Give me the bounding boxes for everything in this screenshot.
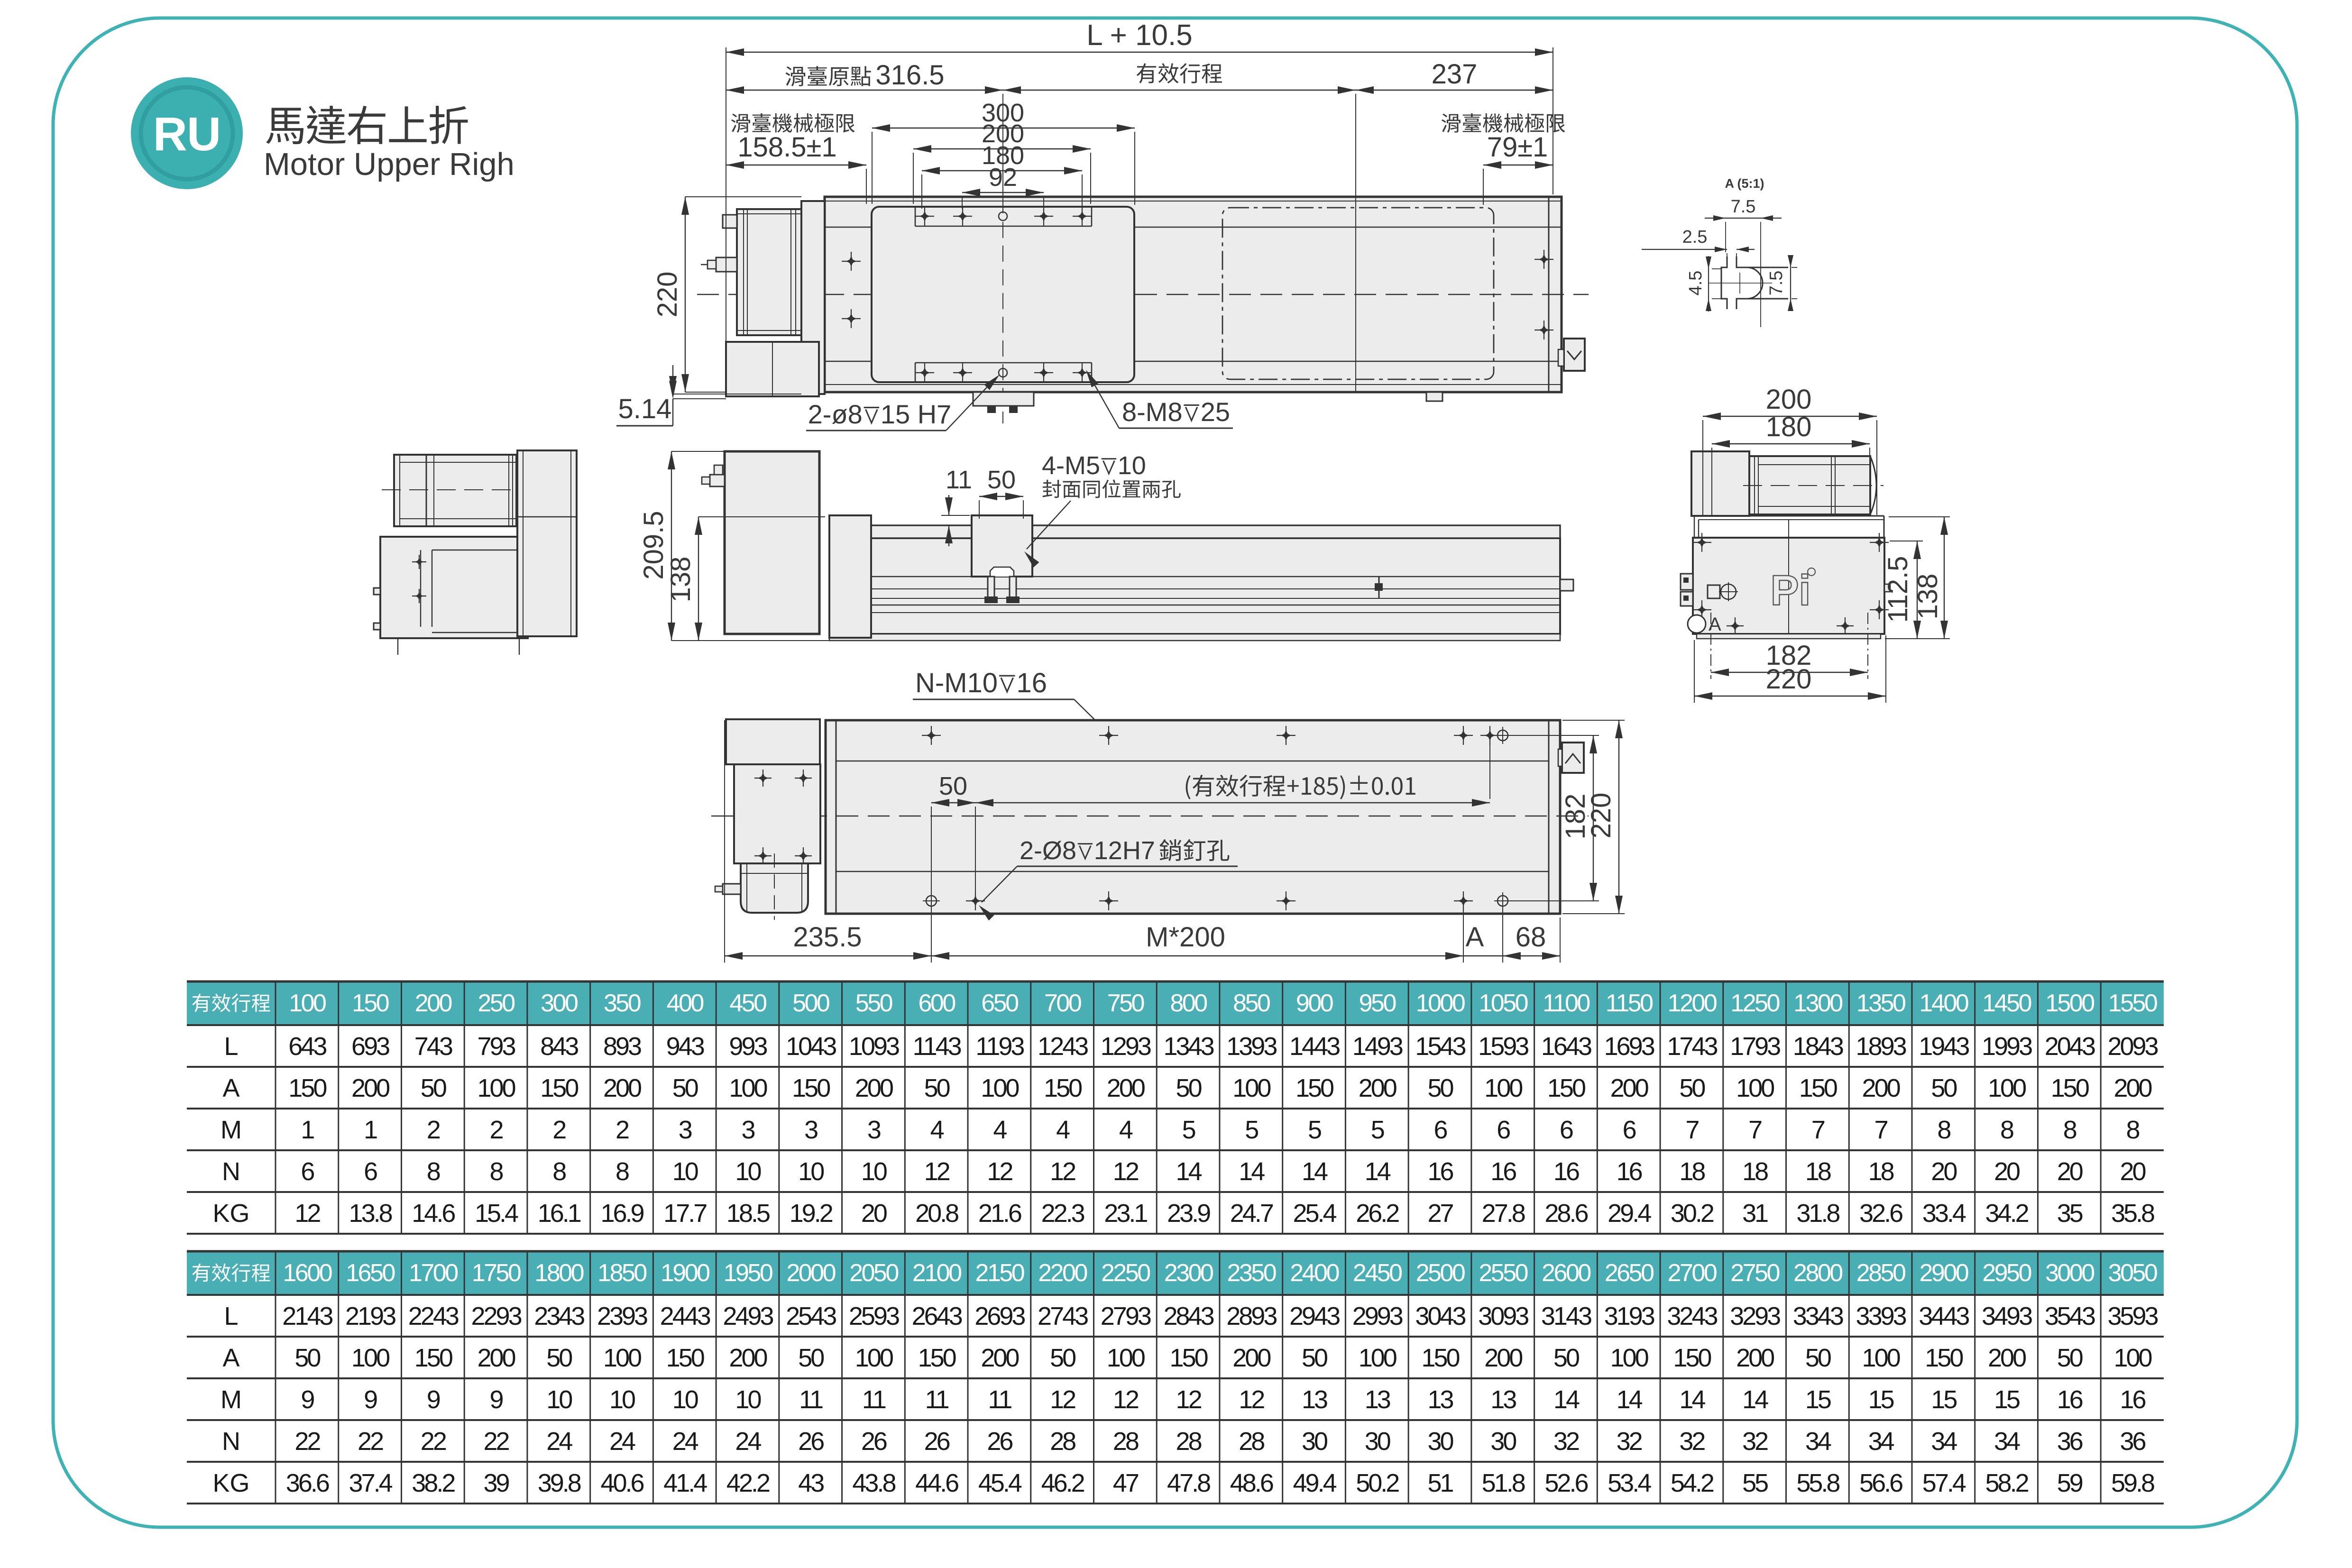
svg-text:24.7: 24.7 (1230, 1199, 1273, 1228)
svg-text:92: 92 (989, 163, 1017, 192)
svg-text:26.2: 26.2 (1356, 1199, 1399, 1228)
svg-text:138: 138 (665, 557, 696, 603)
svg-text:L: L (224, 1032, 238, 1061)
svg-text:A: A (222, 1344, 239, 1372)
svg-text:24: 24 (735, 1427, 761, 1456)
svg-text:35: 35 (2057, 1199, 2083, 1228)
svg-text:23.9: 23.9 (1167, 1199, 1210, 1228)
svg-text:6: 6 (1623, 1116, 1636, 1144)
svg-text:9: 9 (364, 1385, 377, 1414)
svg-text:26: 26 (861, 1427, 887, 1456)
svg-text:793: 793 (477, 1032, 515, 1061)
svg-text:220: 220 (1586, 793, 1617, 839)
svg-text:12: 12 (1113, 1385, 1139, 1414)
svg-text:21.6: 21.6 (978, 1199, 1021, 1228)
svg-text:11: 11 (799, 1385, 823, 1414)
svg-text:50: 50 (1176, 1074, 1202, 1102)
svg-text:100: 100 (289, 990, 326, 1017)
svg-text:36: 36 (2057, 1427, 2083, 1456)
svg-text:2: 2 (616, 1116, 629, 1144)
svg-text:237: 237 (1432, 59, 1478, 90)
svg-text:350: 350 (604, 990, 641, 1017)
svg-text:150: 150 (1421, 1344, 1459, 1372)
svg-text:3343: 3343 (1793, 1302, 1843, 1330)
svg-text:18: 18 (1805, 1157, 1831, 1186)
svg-text:32: 32 (1553, 1427, 1579, 1456)
svg-text:14: 14 (1365, 1157, 1391, 1186)
svg-text:150: 150 (352, 990, 389, 1017)
svg-text:12: 12 (1113, 1157, 1139, 1186)
svg-text:28: 28 (1050, 1427, 1075, 1456)
svg-text:11: 11 (988, 1385, 1011, 1414)
svg-text:54.2: 54.2 (1671, 1469, 1714, 1497)
svg-text:9: 9 (490, 1385, 503, 1414)
svg-text:2043: 2043 (2045, 1032, 2095, 1061)
svg-text:9: 9 (301, 1385, 314, 1414)
svg-text:993: 993 (729, 1032, 767, 1061)
svg-text:58.2: 58.2 (1985, 1469, 2029, 1497)
svg-text:M: M (220, 1116, 242, 1144)
svg-text:8: 8 (427, 1157, 440, 1186)
svg-text:45.4: 45.4 (978, 1469, 1022, 1497)
svg-text:150: 150 (918, 1344, 956, 1372)
svg-text:50: 50 (939, 772, 967, 800)
svg-text:4-M5: 4-M5 (1042, 451, 1100, 480)
svg-text:3443: 3443 (1919, 1302, 1969, 1330)
svg-text:2850: 2850 (1856, 1259, 1905, 1287)
svg-text:150: 150 (1295, 1074, 1333, 1102)
svg-text:16: 16 (1553, 1157, 1579, 1186)
svg-text:24: 24 (546, 1427, 572, 1456)
svg-text:30.2: 30.2 (1671, 1199, 1714, 1228)
svg-text:10: 10 (672, 1157, 698, 1186)
svg-text:3243: 3243 (1667, 1302, 1717, 1330)
svg-text:28.6: 28.6 (1544, 1199, 1588, 1228)
svg-text:450: 450 (729, 990, 766, 1017)
svg-text:3493: 3493 (1982, 1302, 2032, 1330)
svg-text:800: 800 (1170, 990, 1207, 1017)
svg-text:200: 200 (2113, 1074, 2151, 1102)
svg-text:209.5: 209.5 (638, 511, 669, 579)
svg-text:200: 200 (1862, 1074, 1900, 1102)
svg-text:22: 22 (294, 1427, 320, 1456)
svg-text:55: 55 (1742, 1469, 1768, 1497)
svg-text:150: 150 (1799, 1074, 1837, 1102)
svg-text:51: 51 (1427, 1469, 1453, 1497)
svg-text:50: 50 (672, 1074, 698, 1102)
svg-text:8: 8 (2126, 1116, 2140, 1144)
svg-text:100: 100 (351, 1344, 389, 1372)
svg-text:34: 34 (1868, 1427, 1894, 1456)
svg-text:700: 700 (1044, 990, 1081, 1017)
svg-text:1793: 1793 (1730, 1032, 1780, 1061)
svg-text:50: 50 (1805, 1344, 1831, 1372)
svg-text:2750: 2750 (1730, 1259, 1779, 1287)
svg-text:42.2: 42.2 (726, 1469, 770, 1497)
svg-text:30: 30 (1365, 1427, 1390, 1456)
svg-text:2500: 2500 (1416, 1259, 1465, 1287)
svg-text:11: 11 (946, 466, 972, 494)
svg-text:50: 50 (2057, 1344, 2083, 1372)
svg-text:1700: 1700 (409, 1259, 458, 1287)
svg-text:38.2: 38.2 (412, 1469, 455, 1497)
svg-text:3193: 3193 (1604, 1302, 1654, 1330)
svg-text:25: 25 (1201, 397, 1230, 427)
svg-text:235.5: 235.5 (793, 922, 862, 953)
svg-text:2100: 2100 (912, 1259, 961, 1287)
svg-text:500: 500 (792, 990, 829, 1017)
svg-text:51.8: 51.8 (1482, 1469, 1525, 1497)
svg-text:1443: 1443 (1289, 1032, 1340, 1061)
svg-text:3593: 3593 (2107, 1302, 2158, 1330)
svg-text:22.3: 22.3 (1041, 1199, 1084, 1228)
svg-text:200: 200 (855, 1074, 893, 1102)
svg-text:28: 28 (1176, 1427, 1202, 1456)
svg-text:220: 220 (652, 272, 683, 318)
svg-text:RU: RU (153, 108, 220, 161)
svg-text:2943: 2943 (1289, 1302, 1340, 1330)
svg-text:25.4: 25.4 (1293, 1199, 1336, 1228)
svg-text:200: 200 (981, 1344, 1019, 1372)
svg-text:200: 200 (1359, 1074, 1396, 1102)
svg-text:1543: 1543 (1415, 1032, 1465, 1061)
svg-text:50: 50 (987, 466, 1016, 494)
svg-text:6: 6 (364, 1157, 377, 1186)
svg-text:11: 11 (925, 1385, 949, 1414)
svg-text:100: 100 (2113, 1344, 2151, 1372)
svg-text:250: 250 (478, 990, 514, 1017)
svg-text:643: 643 (288, 1032, 326, 1061)
svg-text:138: 138 (1912, 574, 1943, 620)
svg-text:59: 59 (2057, 1469, 2083, 1497)
svg-text:27.8: 27.8 (1482, 1199, 1525, 1228)
svg-text:2843: 2843 (1164, 1302, 1214, 1330)
svg-text:29.4: 29.4 (1608, 1199, 1651, 1228)
svg-text:150: 150 (1925, 1344, 1963, 1372)
svg-text:4: 4 (993, 1116, 1007, 1144)
svg-text:1943: 1943 (1919, 1032, 1969, 1061)
svg-text:50: 50 (924, 1074, 950, 1102)
svg-text:100: 100 (729, 1074, 767, 1102)
svg-text:12: 12 (987, 1157, 1012, 1186)
svg-text:26: 26 (987, 1427, 1012, 1456)
svg-text:943: 943 (666, 1032, 704, 1061)
svg-text:26: 26 (924, 1427, 950, 1456)
svg-text:8: 8 (616, 1157, 629, 1186)
svg-text:1850: 1850 (597, 1259, 646, 1287)
svg-text:14: 14 (1679, 1385, 1705, 1414)
svg-text:37.4: 37.4 (349, 1469, 393, 1497)
svg-text:13.8: 13.8 (349, 1199, 392, 1228)
svg-text:200: 200 (351, 1074, 389, 1102)
svg-text:2493: 2493 (723, 1302, 773, 1330)
svg-text:200: 200 (1232, 1344, 1270, 1372)
svg-text:2393: 2393 (597, 1302, 647, 1330)
svg-text:1693: 1693 (1604, 1032, 1654, 1061)
svg-text:53.4: 53.4 (1608, 1469, 1651, 1497)
svg-text:Motor Upper Righ: Motor Upper Righ (264, 147, 514, 182)
svg-text:1750: 1750 (472, 1259, 521, 1287)
svg-text:7: 7 (1874, 1116, 1888, 1144)
svg-text:10: 10 (546, 1385, 572, 1414)
svg-text:100: 100 (1359, 1344, 1396, 1372)
svg-text:2000: 2000 (786, 1259, 835, 1287)
svg-text:23.1: 23.1 (1104, 1199, 1147, 1228)
svg-text:1493: 1493 (1352, 1032, 1403, 1061)
svg-text:20: 20 (2057, 1157, 2083, 1186)
svg-text:12: 12 (1050, 1385, 1075, 1414)
svg-text:34: 34 (1805, 1427, 1831, 1456)
svg-text:1593: 1593 (1478, 1032, 1528, 1061)
svg-text:39: 39 (484, 1469, 509, 1497)
svg-text:200: 200 (477, 1344, 515, 1372)
svg-text:4: 4 (1119, 1116, 1133, 1144)
svg-text:1143: 1143 (913, 1032, 961, 1061)
svg-text:2300: 2300 (1164, 1259, 1213, 1287)
svg-text:100: 100 (477, 1074, 515, 1102)
svg-text:KG: KG (212, 1469, 249, 1497)
svg-text:1300: 1300 (1793, 990, 1842, 1017)
svg-text:1650: 1650 (346, 1259, 395, 1287)
svg-text:50: 50 (1931, 1074, 1957, 1102)
svg-text:7: 7 (1748, 1116, 1762, 1144)
svg-text:3543: 3543 (2045, 1302, 2095, 1330)
svg-text:5.14: 5.14 (618, 394, 672, 424)
svg-text:2900: 2900 (1919, 1259, 1968, 1287)
svg-text:150: 150 (288, 1074, 326, 1102)
svg-text:7.5: 7.5 (1766, 271, 1786, 296)
svg-text:1343: 1343 (1164, 1032, 1214, 1061)
svg-text:15.4: 15.4 (475, 1199, 518, 1228)
svg-text:50: 50 (1553, 1344, 1579, 1372)
svg-text:1250: 1250 (1730, 990, 1779, 1017)
svg-text:16.1: 16.1 (538, 1199, 581, 1228)
svg-text:893: 893 (603, 1032, 641, 1061)
svg-text:150: 150 (414, 1344, 452, 1372)
svg-text:14: 14 (1553, 1385, 1580, 1414)
svg-text:57.4: 57.4 (1922, 1469, 1966, 1497)
svg-text:2793: 2793 (1101, 1302, 1151, 1330)
svg-text:1550: 1550 (2108, 990, 2157, 1017)
svg-text:14: 14 (1239, 1157, 1265, 1186)
svg-text:2350: 2350 (1227, 1259, 1276, 1287)
svg-text:A: A (1466, 922, 1484, 953)
svg-text:2-ø8: 2-ø8 (808, 399, 863, 429)
svg-text:750: 750 (1107, 990, 1144, 1017)
svg-text:150: 150 (2051, 1074, 2089, 1102)
svg-text:10: 10 (798, 1157, 824, 1186)
svg-text:2950: 2950 (1982, 1259, 2031, 1287)
svg-text:22: 22 (484, 1427, 509, 1456)
svg-text:3000: 3000 (2045, 1259, 2094, 1287)
svg-text:3: 3 (741, 1116, 754, 1144)
svg-text:3043: 3043 (1415, 1302, 1465, 1330)
svg-text:150: 150 (1170, 1344, 1208, 1372)
svg-text:1600: 1600 (283, 1259, 332, 1287)
svg-text:100: 100 (603, 1344, 641, 1372)
svg-text:11: 11 (862, 1385, 886, 1414)
svg-text:8: 8 (552, 1157, 566, 1186)
svg-text:50: 50 (546, 1344, 572, 1372)
svg-text:2443: 2443 (660, 1302, 710, 1330)
svg-text:8-M8: 8-M8 (1122, 397, 1183, 427)
svg-text:22: 22 (421, 1427, 446, 1456)
svg-text:46.2: 46.2 (1041, 1469, 1084, 1497)
svg-text:220: 220 (1766, 664, 1812, 695)
svg-text:16: 16 (1490, 1157, 1516, 1186)
svg-text:1393: 1393 (1226, 1032, 1277, 1061)
svg-text:2543: 2543 (786, 1302, 836, 1330)
svg-text:13: 13 (1302, 1385, 1327, 1414)
svg-text:14: 14 (1302, 1157, 1328, 1186)
svg-text:34.2: 34.2 (1985, 1199, 2029, 1228)
svg-text:L + 10.5: L + 10.5 (1086, 19, 1193, 52)
svg-text:150: 150 (1547, 1074, 1585, 1102)
svg-text:33.4: 33.4 (1922, 1199, 1966, 1228)
svg-text:2893: 2893 (1226, 1302, 1277, 1330)
svg-text:550: 550 (855, 990, 892, 1017)
svg-text:7: 7 (1685, 1116, 1699, 1144)
svg-text:693: 693 (351, 1032, 389, 1061)
svg-text:32.6: 32.6 (1859, 1199, 1902, 1228)
svg-text:100: 100 (1988, 1074, 2026, 1102)
svg-text:100: 100 (981, 1074, 1019, 1102)
svg-text:2643: 2643 (912, 1302, 962, 1330)
svg-text:1843: 1843 (1793, 1032, 1843, 1061)
svg-text:A: A (222, 1074, 239, 1102)
svg-text:30: 30 (1490, 1427, 1516, 1456)
svg-text:1293: 1293 (1101, 1032, 1151, 1061)
svg-text:8: 8 (490, 1157, 503, 1186)
svg-text:10: 10 (735, 1385, 761, 1414)
svg-text:20: 20 (2120, 1157, 2145, 1186)
svg-text:200: 200 (415, 990, 452, 1017)
svg-text:950: 950 (1359, 990, 1396, 1017)
svg-text:180: 180 (1766, 412, 1812, 442)
svg-text:31: 31 (1742, 1199, 1768, 1228)
svg-text:1100: 1100 (1543, 990, 1589, 1017)
svg-text:15: 15 (1868, 1385, 1894, 1414)
svg-text:50: 50 (1679, 1074, 1705, 1102)
svg-text:150: 150 (666, 1344, 704, 1372)
svg-text:1950: 1950 (724, 1259, 772, 1287)
svg-text:200: 200 (1766, 384, 1812, 415)
svg-text:900: 900 (1296, 990, 1333, 1017)
svg-text:200: 200 (1484, 1344, 1522, 1372)
svg-text:8: 8 (1937, 1116, 1950, 1144)
svg-text:34: 34 (1994, 1427, 2020, 1456)
svg-text:50: 50 (1050, 1344, 1075, 1372)
svg-text:843: 843 (540, 1032, 578, 1061)
svg-text:14.6: 14.6 (412, 1199, 455, 1228)
svg-text:2743: 2743 (1038, 1302, 1088, 1330)
svg-text:1500: 1500 (2045, 990, 2094, 1017)
svg-text:158.5±1: 158.5±1 (737, 132, 836, 163)
svg-text:20: 20 (1994, 1157, 2020, 1186)
svg-text:2250: 2250 (1101, 1259, 1150, 1287)
svg-text:18: 18 (1742, 1157, 1768, 1186)
svg-text:2150: 2150 (975, 1259, 1024, 1287)
svg-text:20: 20 (1931, 1157, 1957, 1186)
svg-text:1093: 1093 (849, 1032, 899, 1061)
svg-text:50: 50 (798, 1344, 824, 1372)
svg-text:6: 6 (301, 1157, 314, 1186)
svg-text:2550: 2550 (1479, 1259, 1527, 1287)
svg-text:12H7: 12H7 (1094, 836, 1155, 865)
svg-text:KG: KG (212, 1199, 249, 1228)
svg-text:3393: 3393 (1856, 1302, 1906, 1330)
svg-text:50: 50 (1427, 1074, 1453, 1102)
svg-text:13: 13 (1490, 1385, 1516, 1414)
svg-text:18.5: 18.5 (726, 1199, 770, 1228)
svg-text:43.8: 43.8 (852, 1469, 895, 1497)
svg-text:14: 14 (1617, 1385, 1643, 1414)
svg-text:150: 150 (540, 1074, 578, 1102)
svg-text:16: 16 (1016, 668, 1047, 698)
svg-text:32: 32 (1617, 1427, 1642, 1456)
svg-text:79±1: 79±1 (1487, 132, 1548, 163)
svg-text:A (5:1): A (5:1) (1725, 176, 1764, 191)
svg-text:50: 50 (421, 1074, 446, 1102)
svg-text:N-M10: N-M10 (915, 668, 998, 698)
svg-text:15: 15 (1994, 1385, 2020, 1414)
svg-text:44.6: 44.6 (915, 1469, 958, 1497)
svg-text:28: 28 (1113, 1427, 1139, 1456)
svg-text:2700: 2700 (1668, 1259, 1717, 1287)
svg-text:28: 28 (1239, 1427, 1264, 1456)
svg-text:35.8: 35.8 (2111, 1199, 2154, 1228)
svg-text:49.4: 49.4 (1293, 1469, 1336, 1497)
svg-text:6: 6 (1433, 1116, 1447, 1144)
svg-text:M: M (220, 1385, 242, 1414)
svg-text:5: 5 (1245, 1116, 1258, 1144)
svg-text:2093: 2093 (2107, 1032, 2158, 1061)
svg-text:200: 200 (1736, 1344, 1774, 1372)
svg-text:47.8: 47.8 (1167, 1469, 1210, 1497)
svg-text:743: 743 (414, 1032, 452, 1061)
svg-text:39.8: 39.8 (538, 1469, 581, 1497)
svg-text:M*200: M*200 (1146, 922, 1225, 953)
svg-text:316.5: 316.5 (875, 60, 944, 91)
svg-text:N: N (222, 1157, 240, 1186)
svg-text:16: 16 (2120, 1385, 2145, 1414)
svg-text:68: 68 (1516, 922, 1546, 953)
svg-text:1450: 1450 (1982, 990, 2031, 1017)
svg-text:1150: 1150 (1606, 990, 1653, 1017)
svg-text:1800: 1800 (534, 1259, 583, 1287)
svg-text:2050: 2050 (849, 1259, 898, 1287)
svg-text:10: 10 (672, 1385, 698, 1414)
svg-text:8: 8 (2000, 1116, 2013, 1144)
svg-text:400: 400 (667, 990, 704, 1017)
svg-text:5: 5 (1308, 1116, 1321, 1144)
svg-text:43: 43 (798, 1469, 824, 1497)
svg-text:10: 10 (1118, 451, 1146, 480)
svg-text:12: 12 (1176, 1385, 1202, 1414)
svg-text:24: 24 (672, 1427, 698, 1456)
svg-text:56.6: 56.6 (1859, 1469, 1902, 1497)
svg-text:100: 100 (1862, 1344, 1900, 1372)
svg-text:1400: 1400 (1919, 990, 1968, 1017)
svg-text:N: N (222, 1427, 240, 1456)
svg-text:12: 12 (1050, 1157, 1075, 1186)
svg-text:36: 36 (2120, 1427, 2145, 1456)
svg-text:50.2: 50.2 (1356, 1469, 1399, 1497)
svg-text:100: 100 (1232, 1074, 1270, 1102)
svg-text:200: 200 (1107, 1074, 1145, 1102)
svg-text:22: 22 (358, 1427, 383, 1456)
svg-text:2243: 2243 (408, 1302, 459, 1330)
